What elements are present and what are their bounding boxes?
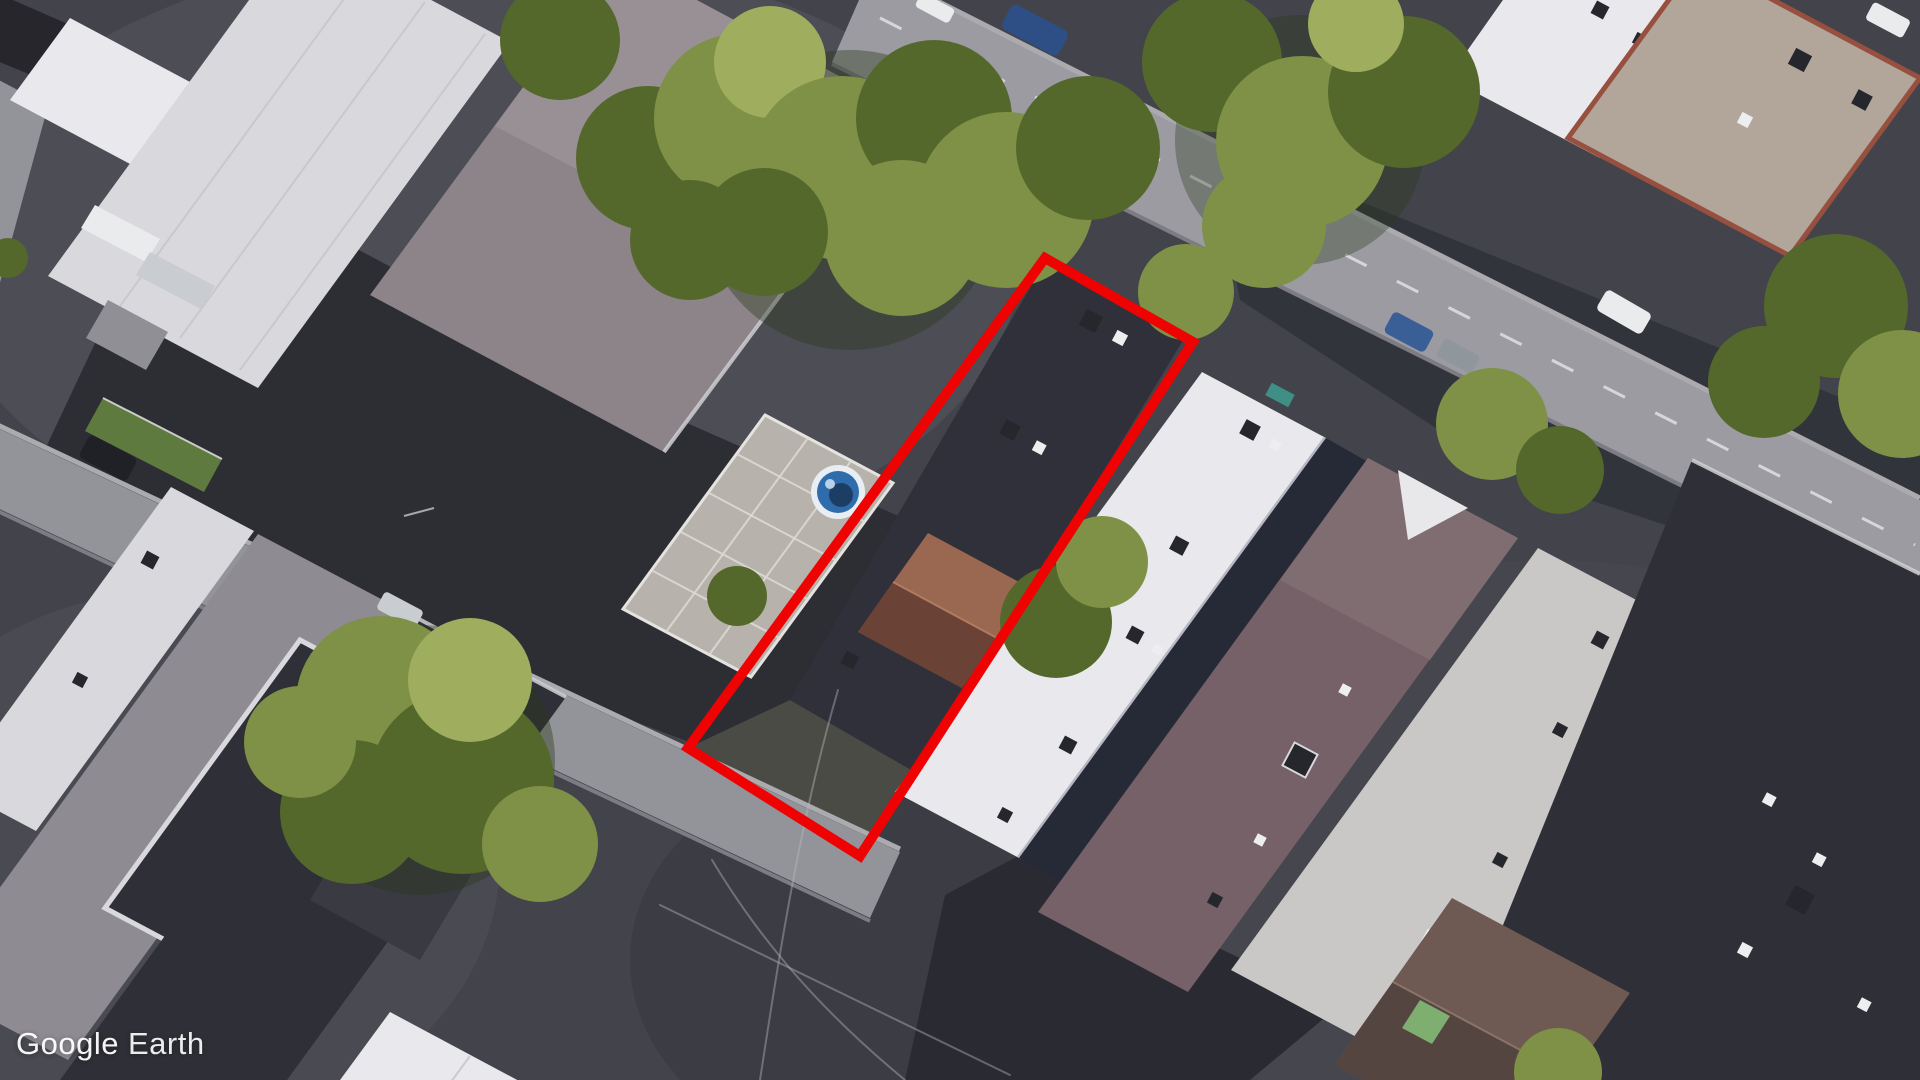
- google-earth-watermark: GoogleEarth: [16, 1026, 205, 1062]
- watermark-brand: Google: [16, 1026, 119, 1061]
- satellite-imagery[interactable]: [0, 0, 1920, 1080]
- watermark-product: Earth: [128, 1026, 205, 1061]
- google-earth-viewport[interactable]: GoogleEarth: [0, 0, 1920, 1080]
